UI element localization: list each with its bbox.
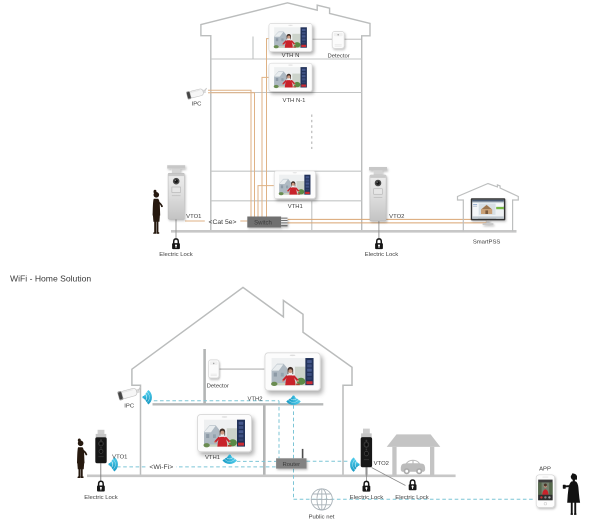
- svg-text:Electric Lock: Electric Lock: [84, 495, 117, 501]
- svg-text:VTH2: VTH2: [247, 397, 262, 403]
- svg-text:SmartPSS: SmartPSS: [473, 240, 501, 246]
- svg-text:<Cat 5e>: <Cat 5e>: [209, 219, 237, 226]
- svg-text:Detector: Detector: [207, 383, 229, 389]
- svg-text:Public net: Public net: [309, 515, 335, 521]
- svg-text:VTH1: VTH1: [288, 204, 303, 210]
- svg-text:IPC: IPC: [192, 102, 203, 108]
- svg-text:VTH1: VTH1: [205, 455, 220, 461]
- svg-text:Electric Lock: Electric Lock: [365, 252, 398, 258]
- svg-text:Electric Lock: Electric Lock: [159, 252, 192, 258]
- svg-text:VTH N-1: VTH N-1: [283, 98, 306, 104]
- svg-text:Electric Lock: Electric Lock: [395, 495, 428, 501]
- svg-text:VTH N: VTH N: [282, 53, 300, 59]
- svg-text:<Wi-Fi>: <Wi-Fi>: [149, 464, 173, 471]
- svg-text:APP: APP: [539, 467, 551, 473]
- svg-text:VTO1: VTO1: [186, 214, 201, 220]
- svg-text:VTO2: VTO2: [374, 461, 389, 467]
- svg-text:Switch: Switch: [254, 220, 272, 226]
- svg-text:VTO1: VTO1: [112, 454, 127, 460]
- svg-text:Detector: Detector: [327, 54, 349, 60]
- svg-text:Electric Lock: Electric Lock: [350, 495, 383, 501]
- svg-text:Router: Router: [282, 462, 300, 468]
- svg-text:WiFi - Home Solution: WiFi - Home Solution: [10, 274, 91, 284]
- svg-text:VTO2: VTO2: [389, 214, 404, 220]
- svg-text:IPC: IPC: [124, 404, 135, 410]
